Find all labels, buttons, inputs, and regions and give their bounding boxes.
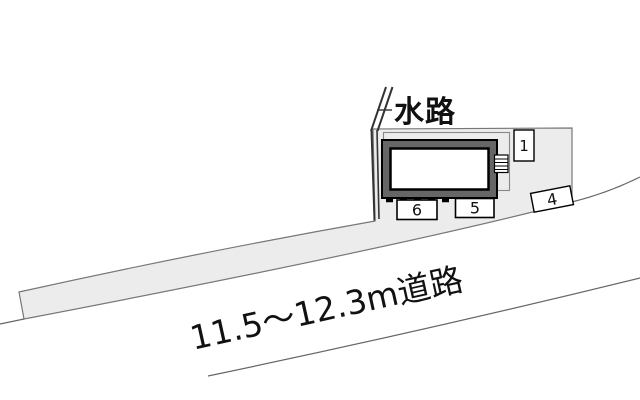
road-upper-edge-right: [572, 177, 640, 202]
parking-space-1-label: 1: [519, 137, 529, 155]
site-plan-drawing: 水路 1 6 5 4: [0, 0, 640, 400]
site-plan: 水路 1 6 5 4: [0, 0, 640, 400]
road-upper-edge-left: [0, 319, 24, 324]
parking-space-5: 5: [456, 199, 495, 218]
parking-space-5-label: 5: [470, 199, 480, 218]
entrance-steps-icon: [495, 155, 509, 173]
parking-space-1: 1: [514, 130, 534, 161]
parking-space-6: 6: [397, 200, 437, 220]
parking-space-6-label: 6: [412, 201, 422, 220]
waterway-line-outer: [371, 87, 386, 131]
building-inner-floor: [391, 149, 489, 190]
waterway-label: 水路: [394, 95, 456, 130]
waterway-line-inner: [378, 87, 393, 131]
